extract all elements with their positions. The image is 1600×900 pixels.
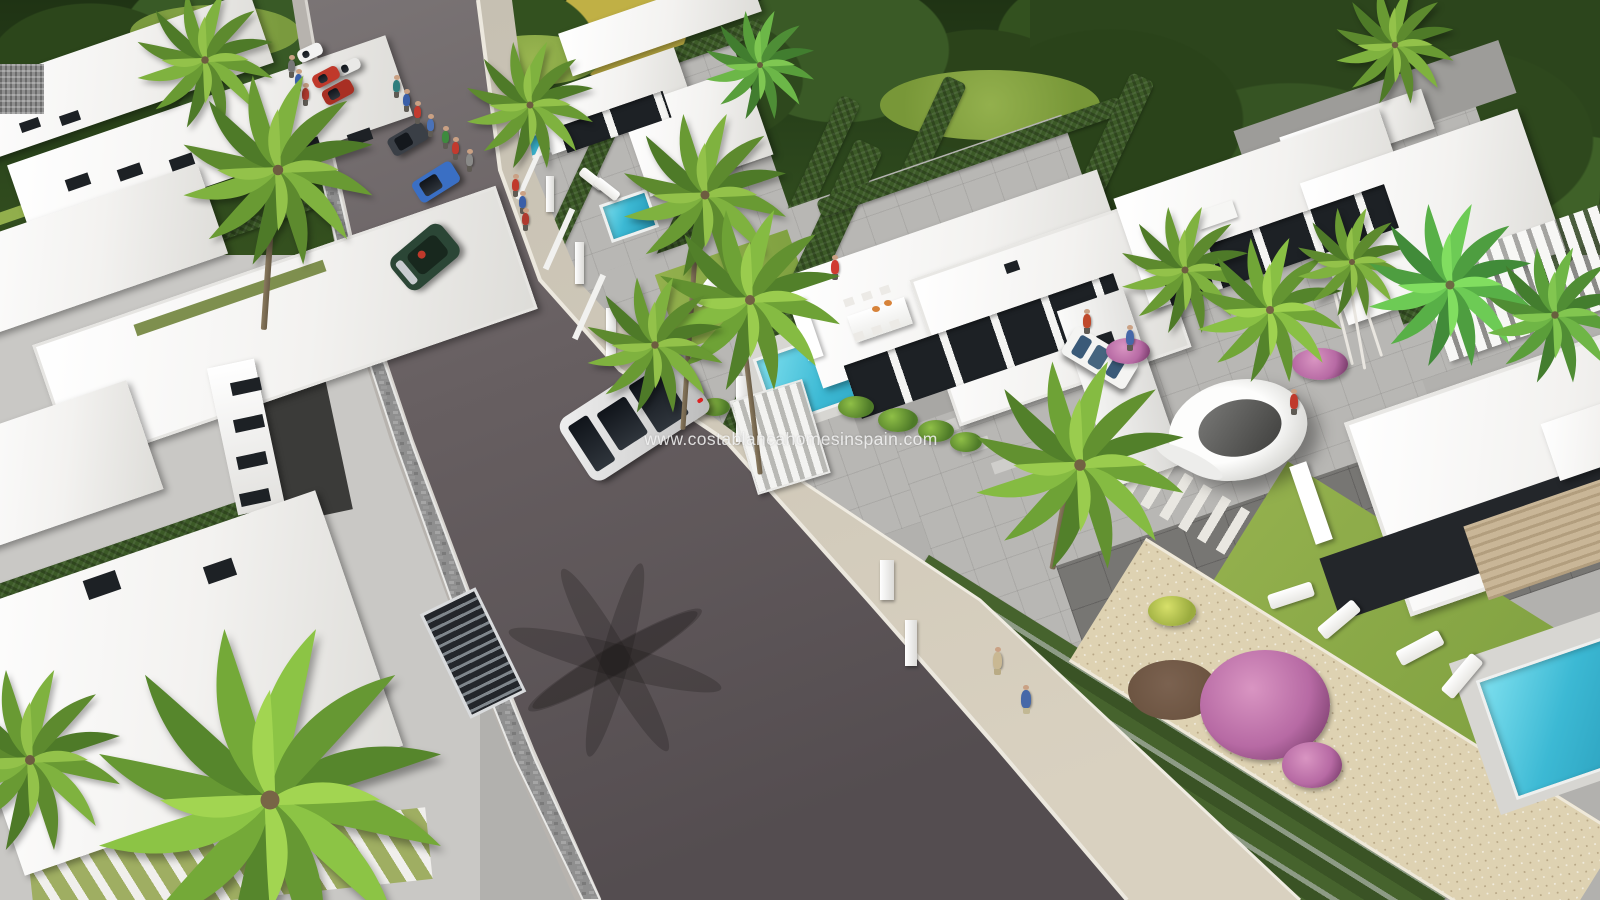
walker-on-promenade bbox=[993, 652, 1002, 669]
fence-pillar bbox=[905, 620, 917, 666]
palm-tree bbox=[580, 270, 730, 420]
fence-pillar bbox=[880, 560, 894, 600]
pedestrian bbox=[414, 106, 421, 118]
gabion-wall bbox=[0, 64, 44, 114]
table-bowl bbox=[872, 306, 880, 312]
pedestrian bbox=[452, 142, 459, 154]
pedestrian bbox=[427, 119, 434, 131]
table-bowl bbox=[884, 300, 892, 306]
flowering-shrub bbox=[1282, 742, 1342, 788]
walker-on-promenade bbox=[1021, 690, 1031, 708]
pedestrian bbox=[519, 196, 526, 208]
palm-tree bbox=[460, 35, 600, 175]
pedestrian bbox=[442, 131, 449, 143]
palm-tree bbox=[173, 65, 383, 275]
palm-tree bbox=[1480, 240, 1600, 390]
fence-pillar bbox=[546, 176, 554, 212]
pedestrian bbox=[1083, 314, 1091, 328]
pedestrian bbox=[512, 179, 519, 191]
pedestrian bbox=[403, 94, 410, 106]
palm-tree bbox=[965, 350, 1195, 580]
pedestrian bbox=[1290, 394, 1298, 409]
palm-tree-large bbox=[80, 610, 460, 900]
shrub bbox=[1148, 596, 1196, 626]
pedestrian bbox=[522, 213, 529, 225]
watermark-text: www.costablancahomesinspain.com bbox=[644, 429, 938, 450]
render-stage: www.costablancahomesinspain.com bbox=[0, 0, 1600, 900]
pedestrian bbox=[393, 80, 400, 92]
palm-tree bbox=[1330, 0, 1460, 110]
